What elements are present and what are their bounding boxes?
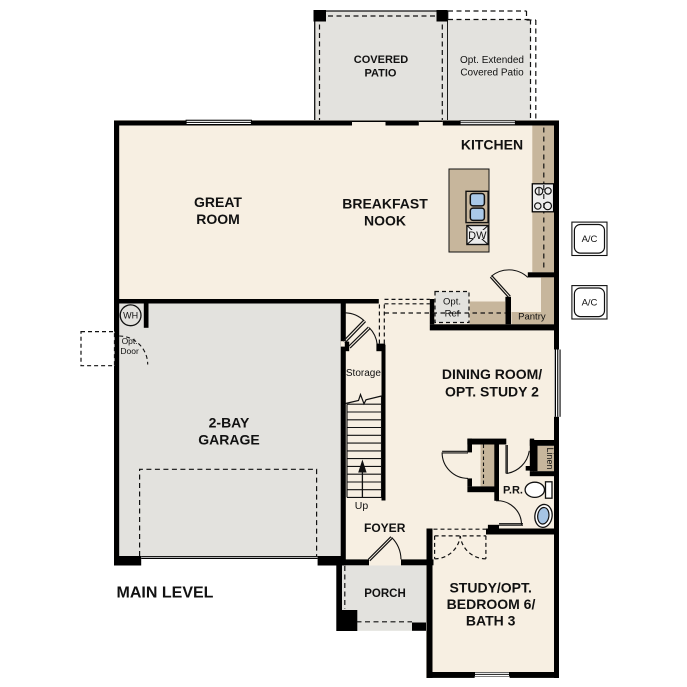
- svg-text:Door: Door: [120, 346, 139, 356]
- svg-text:Up: Up: [355, 500, 369, 512]
- svg-text:Opt. Extended: Opt. Extended: [460, 55, 524, 66]
- svg-text:Ref: Ref: [445, 309, 460, 320]
- svg-text:DINING ROOM/: DINING ROOM/: [442, 366, 542, 382]
- svg-text:BREAKFAST: BREAKFAST: [342, 196, 428, 212]
- svg-text:KITCHEN: KITCHEN: [461, 137, 523, 153]
- svg-text:WH: WH: [123, 311, 138, 321]
- svg-text:PORCH: PORCH: [364, 588, 406, 600]
- svg-text:OPT. STUDY 2: OPT. STUDY 2: [445, 384, 539, 400]
- svg-text:Linen: Linen: [545, 447, 555, 469]
- svg-text:GARAGE: GARAGE: [198, 432, 259, 448]
- svg-text:A/C: A/C: [582, 234, 598, 245]
- svg-text:ROOM: ROOM: [196, 211, 240, 227]
- svg-text:GREAT: GREAT: [194, 194, 242, 210]
- svg-text:PATIO: PATIO: [365, 68, 397, 80]
- svg-text:P.R.: P.R.: [503, 484, 523, 496]
- svg-text:NOOK: NOOK: [364, 213, 406, 229]
- svg-text:A/C: A/C: [582, 297, 598, 308]
- svg-text:Opt.: Opt.: [443, 297, 461, 308]
- svg-text:Storage: Storage: [346, 368, 381, 379]
- svg-text:Covered Patio: Covered Patio: [460, 68, 524, 79]
- svg-text:2-BAY: 2-BAY: [209, 415, 250, 431]
- svg-text:FOYER: FOYER: [364, 521, 406, 535]
- svg-text:COVERED: COVERED: [354, 54, 408, 66]
- svg-text:STUDY/OPT.: STUDY/OPT.: [449, 580, 531, 596]
- svg-text:DW: DW: [468, 230, 487, 242]
- svg-text:MAIN LEVEL: MAIN LEVEL: [117, 585, 214, 602]
- svg-text:Pantry: Pantry: [518, 312, 546, 323]
- svg-text:BATH 3: BATH 3: [466, 613, 516, 629]
- svg-text:Opt.: Opt.: [122, 336, 138, 346]
- svg-text:BEDROOM 6/: BEDROOM 6/: [447, 596, 536, 612]
